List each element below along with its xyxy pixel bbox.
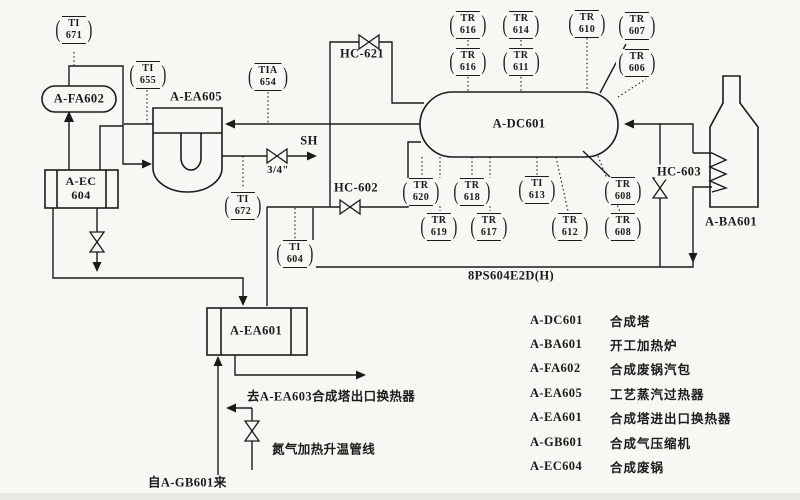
instrument-bubble-tr606: (TR606) (616, 49, 658, 77)
ea605-superheater (153, 108, 222, 192)
legend-tag: A-BA601 (530, 337, 610, 352)
instrument-bubble-tr614: (TR614) (500, 11, 542, 39)
paren-icon: ) (482, 50, 487, 74)
ea605-label: A-EA605 (170, 90, 222, 105)
legend-tag: A-FA602 (530, 361, 610, 376)
paren-icon: ( (604, 179, 609, 203)
legend-desc: 合成废锅 (610, 457, 664, 476)
instrument-tag: TR (563, 215, 578, 227)
ec604-drain-valve (90, 232, 104, 252)
instrument-num: 654 (260, 77, 276, 89)
paren-icon: ) (309, 242, 314, 266)
instrument-bubble-tr619: (TR619) (418, 213, 460, 241)
instrument-num: 613 (529, 190, 545, 202)
paren-icon: ) (503, 215, 508, 239)
instrument-tag: TR (514, 50, 529, 62)
legend-row: A-EA601合成塔进出口换热器 (530, 406, 732, 430)
instrument-tag: TR (616, 179, 631, 191)
n2-line-note: 氮气加热升温管线 (272, 439, 375, 458)
instrument-tag: TI (142, 63, 153, 75)
legend-tag: A-EA605 (530, 386, 610, 401)
screenshot-bottom-edge (0, 493, 800, 500)
ea601-label: A-EA601 (230, 324, 282, 339)
hc603-label: HC-603 (655, 165, 703, 180)
instrument-bubble-tr607: (TR607) (616, 12, 658, 40)
paren-icon: ( (276, 242, 281, 266)
instrument-num: 604 (287, 254, 303, 266)
instrument-num: 672 (235, 206, 251, 218)
instrument-bubble-ti671: (TI671) (53, 16, 95, 44)
instrument-tag: TIA (259, 65, 278, 77)
instrument-bubble-ti613: (TI613) (516, 176, 558, 204)
paren-icon: ( (55, 18, 60, 42)
legend-row: A-EC604合成废锅 (530, 454, 732, 478)
legend-row: A-EA605工艺蒸汽过热器 (530, 381, 732, 405)
paren-icon: ( (449, 13, 454, 37)
instrument-num: 618 (464, 192, 480, 204)
instrument-num: 655 (140, 75, 156, 87)
paren-icon: ( (618, 51, 623, 75)
instrument-bubble-ti672: (TI672) (222, 192, 264, 220)
paren-icon: ( (248, 65, 253, 89)
instrument-num: 606 (629, 63, 645, 75)
instrument-num: 617 (481, 227, 497, 239)
instrument-bubble-tr617: (TR617) (468, 213, 510, 241)
instrument-num: 608 (615, 227, 631, 239)
paren-icon: ) (551, 178, 556, 202)
legend-desc: 工艺蒸汽过热器 (610, 384, 705, 403)
fa602-label: A-FA602 (54, 92, 104, 107)
instrument-num: 610 (579, 24, 595, 36)
paren-icon: ) (283, 65, 288, 89)
legend-row: A-BA601开工加热炉 (530, 332, 732, 356)
instrument-tag: TR (461, 13, 476, 25)
valve-size-label: 3/4" (267, 164, 289, 176)
paren-icon: ( (420, 215, 425, 239)
instrument-bubble-tr616a: (TR616) (447, 11, 489, 39)
paren-icon: ( (502, 13, 507, 37)
paren-icon: ( (224, 194, 229, 218)
n2-line-valve (245, 421, 259, 441)
instrument-tag: TR (514, 13, 529, 25)
paren-icon: ( (402, 180, 407, 204)
instrument-bubble-tr608a: (TR608) (602, 177, 644, 205)
legend-tag: A-EC604 (530, 459, 610, 474)
legend-desc: 开工加热炉 (610, 335, 678, 354)
instrument-num: 616 (460, 62, 476, 74)
paren-icon: ( (470, 215, 475, 239)
paren-icon: ( (453, 180, 458, 204)
instrument-bubble-tr611: (TR611) (500, 48, 542, 76)
paren-icon: ) (482, 13, 487, 37)
legend-row: A-DC601合成塔 (530, 308, 732, 332)
equipment-legend: A-DC601合成塔 A-BA601开工加热炉 A-FA602合成废锅汽包 A-… (530, 308, 732, 479)
instrument-bubble-ti655: (TI655) (127, 61, 169, 89)
ba601-label: A-BA601 (705, 215, 757, 230)
instrument-num: 616 (460, 25, 476, 37)
paren-icon: ) (257, 194, 262, 218)
legend-row: A-FA602合成废锅汽包 (530, 357, 732, 381)
paren-icon: ) (637, 215, 642, 239)
hc621-label: HC-621 (340, 47, 384, 62)
instrument-tag: TI (237, 194, 248, 206)
paren-icon: ( (449, 50, 454, 74)
instrument-bubble-tr618: (TR618) (451, 178, 493, 206)
paren-icon: ) (584, 215, 589, 239)
instrument-bubble-tr612: (TR612) (549, 213, 591, 241)
instrument-tag: TR (630, 14, 645, 26)
instrument-tag: TR (630, 51, 645, 63)
instrument-tag: TR (414, 180, 429, 192)
instrument-bubble-tr608b: (TR608) (602, 213, 644, 241)
hc602-valve (340, 200, 360, 214)
hc602-label: HC-602 (334, 181, 378, 196)
instrument-tag: TR (482, 215, 497, 227)
paren-icon: ) (651, 14, 656, 38)
ec604-label: A-EC604 (66, 175, 97, 203)
pid-diagram: (TI671) (TI655) (TIA654) (TI672) (TI604)… (0, 0, 800, 500)
instrument-bubble-tr616b: (TR616) (447, 48, 489, 76)
instrument-bubble-tr620: (TR620) (400, 178, 442, 206)
instrument-num: 619 (431, 227, 447, 239)
instrument-bubble-tia654: (TIA654) (246, 63, 291, 91)
to-ea603-note: 去A-EA603合成塔出口换热器 (247, 386, 415, 405)
sh-valve (267, 149, 287, 163)
legend-desc: 合成塔进出口换热器 (610, 408, 732, 427)
paren-icon: ( (129, 63, 134, 87)
paren-icon: ) (435, 180, 440, 204)
instrument-tag: TR (580, 12, 595, 24)
paren-icon: ) (535, 13, 540, 37)
from-gb601-note: 自A-GB601来 (148, 472, 227, 491)
paren-icon: ( (503, 50, 508, 74)
legend-desc: 合成废锅汽包 (610, 359, 691, 378)
paren-icon: ( (604, 215, 609, 239)
instrument-tag: TI (68, 18, 79, 30)
sh-label: SH (300, 134, 317, 149)
paren-icon: ( (551, 215, 556, 239)
paren-icon: ) (88, 18, 93, 42)
paren-icon: ) (651, 51, 656, 75)
instrument-tag: TR (432, 215, 447, 227)
legend-row: A-GB601合成气压缩机 (530, 430, 732, 454)
paren-icon: ) (601, 12, 606, 36)
instrument-bubble-ti604: (TI604) (274, 240, 316, 268)
instrument-tag: TI (531, 178, 542, 190)
paren-icon: ) (534, 50, 539, 74)
legend-tag: A-GB601 (530, 435, 610, 450)
instrument-tag: TR (461, 50, 476, 62)
instrument-bubble-tr610: (TR610) (566, 10, 608, 38)
ec604-label-line2: 604 (66, 189, 97, 203)
instrument-tag: TR (465, 180, 480, 192)
ec604-label-line1: A-EC (66, 175, 97, 189)
dc601-label: A-DC601 (493, 117, 546, 132)
instrument-num: 608 (615, 191, 631, 203)
instrument-num: 611 (513, 62, 529, 74)
paren-icon: ( (568, 12, 573, 36)
instrument-num: 671 (66, 30, 82, 42)
legend-desc: 合成塔 (610, 311, 651, 330)
instrument-num: 620 (413, 192, 429, 204)
paren-icon: ) (486, 180, 491, 204)
paren-icon: ( (618, 14, 623, 38)
legend-desc: 合成气压缩机 (610, 433, 691, 452)
instrument-tag: TR (616, 215, 631, 227)
instrument-num: 607 (629, 26, 645, 38)
instrument-num: 612 (562, 227, 578, 239)
legend-tag: A-DC601 (530, 313, 610, 328)
hc603-valve (653, 178, 667, 198)
line-8ps-label: 8PS604E2D(H) (468, 269, 554, 284)
paren-icon: ) (637, 179, 642, 203)
paren-icon: ( (518, 178, 523, 202)
paren-icon: ) (162, 63, 167, 87)
instrument-tag: TI (289, 242, 300, 254)
ba601-furnace (710, 76, 758, 207)
instrument-num: 614 (513, 25, 529, 37)
paren-icon: ) (453, 215, 458, 239)
legend-tag: A-EA601 (530, 410, 610, 425)
